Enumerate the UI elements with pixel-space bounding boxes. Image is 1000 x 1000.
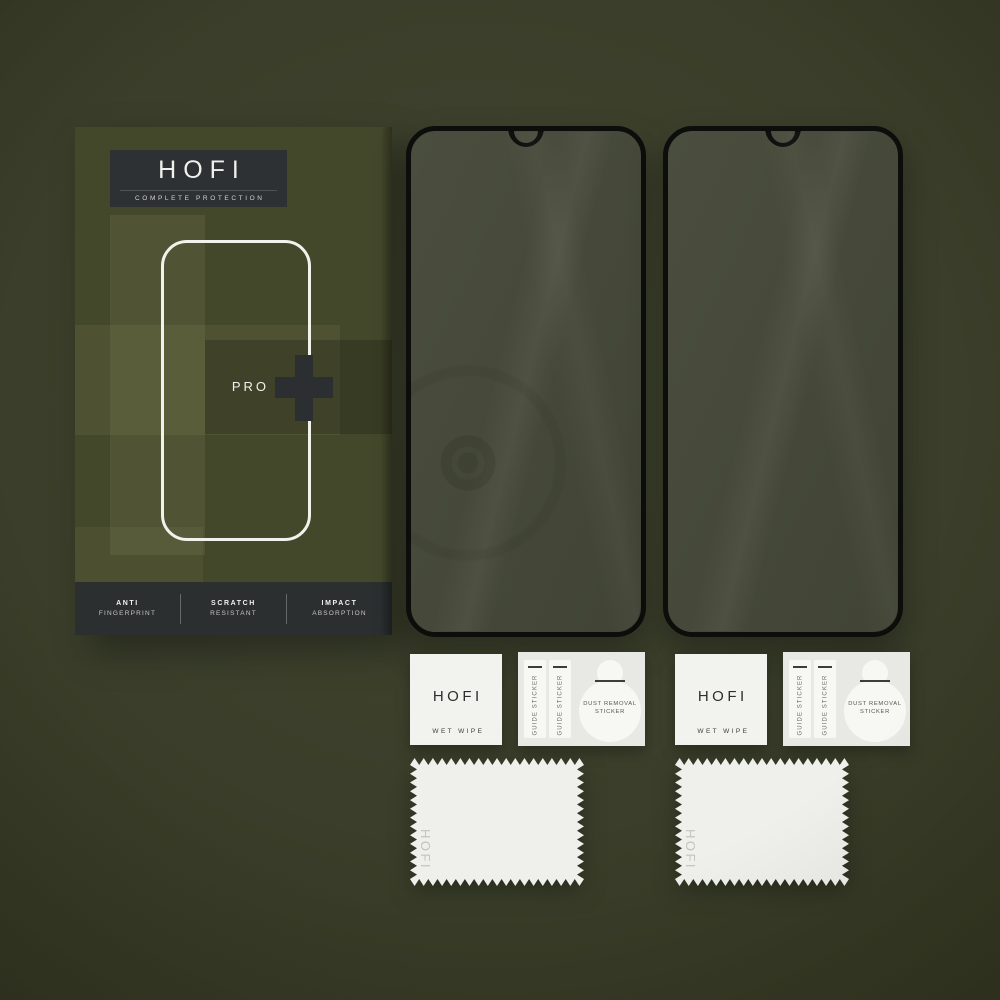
plus-icon	[275, 355, 333, 421]
cloth-brand: HOFI	[404, 824, 448, 874]
cloth-shape: HOFI	[675, 758, 849, 886]
sticker-line	[553, 666, 567, 668]
guide-sticker-strip: GUIDE STICKER	[814, 660, 836, 738]
brand-tagline: COMPLETE PROTECTION	[132, 195, 264, 202]
logo-divider	[120, 190, 277, 191]
glass-outline-graphic	[663, 126, 903, 637]
sticker-line	[595, 680, 625, 682]
product-photo: HOFI COMPLETE PROTECTION PRO ANTI FINGER…	[0, 0, 1000, 1000]
sticker-sheet: GUIDE STICKER GUIDE STICKER DUST REMOVAL…	[518, 652, 645, 746]
guide-sticker-strip: GUIDE STICKER	[524, 660, 546, 738]
wet-wipe-packet: HOFI WET WIPE	[675, 654, 767, 745]
dust-removal-label: DUST REMOVAL STICKER	[575, 701, 645, 716]
sticker-line	[818, 666, 832, 668]
feature-scratch-resistant: SCRATCH RESISTANT	[181, 600, 286, 617]
wet-wipe-packet: HOFI WET WIPE	[410, 654, 502, 745]
hofi-logo: HOFI	[151, 156, 246, 185]
cloth-brand: HOFI	[669, 824, 713, 874]
microfiber-cloth: HOFI	[675, 758, 849, 886]
guide-sticker-strip: GUIDE STICKER	[549, 660, 571, 738]
hofi-logo-block: HOFI COMPLETE PROTECTION	[110, 150, 287, 207]
sticker-sheet: GUIDE STICKER GUIDE STICKER DUST REMOVAL…	[783, 652, 910, 746]
sticker-line	[793, 666, 807, 668]
guide-sticker-strip: GUIDE STICKER	[789, 660, 811, 738]
pro-label: PRO	[185, 379, 269, 394]
retail-box: HOFI COMPLETE PROTECTION PRO ANTI FINGER…	[75, 127, 392, 635]
cloth-shape: HOFI	[410, 758, 584, 886]
wet-wipe-label: WET WIPE	[675, 728, 769, 735]
hofi-logo: HOFI	[675, 688, 767, 705]
microfiber-cloth: HOFI	[410, 758, 584, 886]
hofi-logo: HOFI	[410, 688, 502, 705]
sticker-line	[528, 666, 542, 668]
feature-band: ANTI FINGERPRINT SCRATCH RESISTANT IMPAC…	[75, 582, 392, 635]
feature-anti-fingerprint: ANTI FINGERPRINT	[75, 600, 180, 617]
glass-outline-graphic	[406, 126, 646, 637]
dust-removal-label: DUST REMOVAL STICKER	[840, 701, 910, 716]
wet-wipe-label: WET WIPE	[410, 728, 504, 735]
plus-horizontal-bar	[275, 377, 333, 398]
tempered-glass-right	[663, 126, 903, 637]
feature-impact-absorption: IMPACT ABSORPTION	[287, 600, 392, 617]
sticker-line	[860, 680, 890, 682]
tempered-glass-left	[406, 126, 646, 637]
